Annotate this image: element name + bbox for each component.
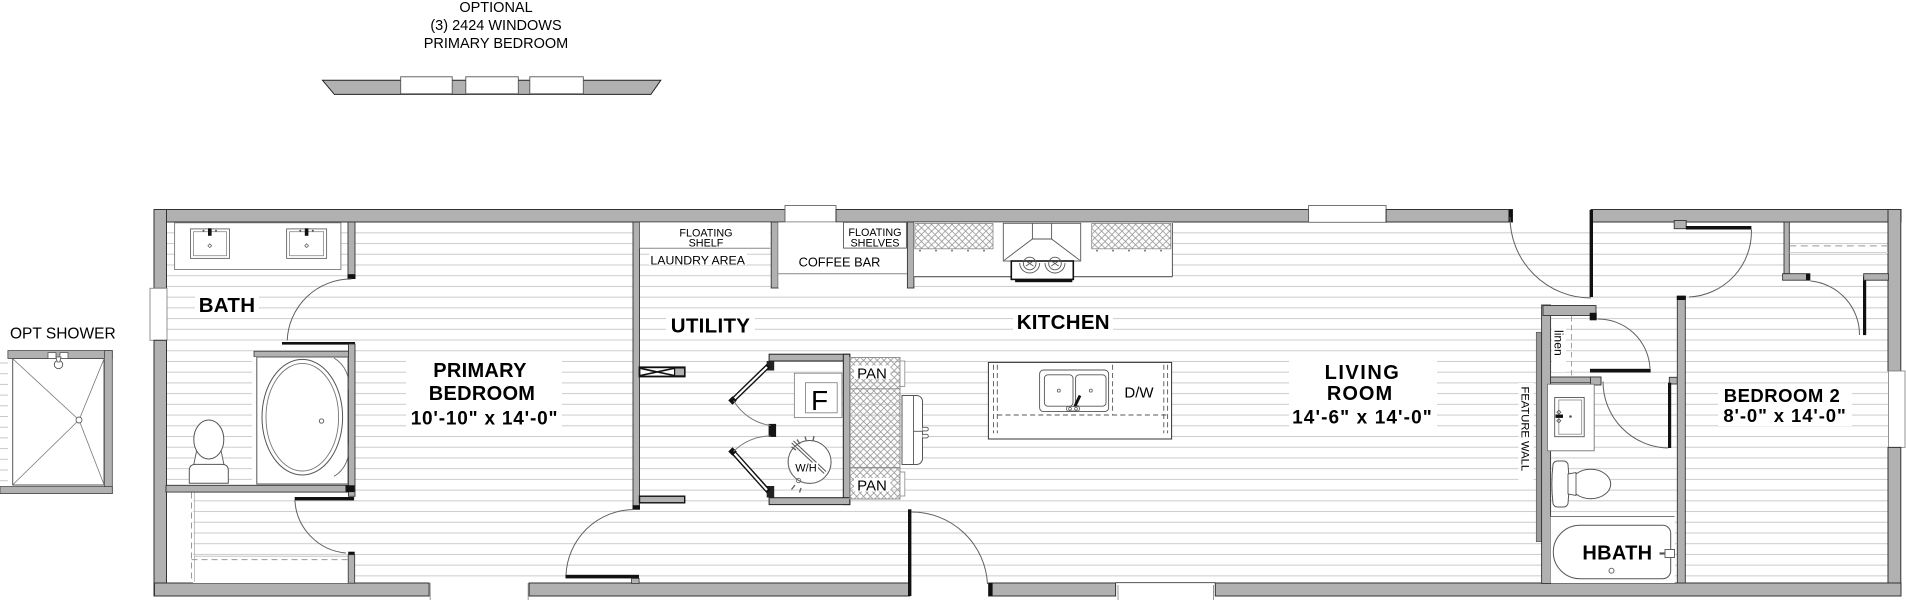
svg-text:LIVING: LIVING (1325, 362, 1401, 384)
svg-text:KITCHEN: KITCHEN (1017, 311, 1110, 334)
svg-text:COFFEE BAR: COFFEE BAR (799, 255, 881, 270)
svg-text:PAN: PAN (857, 478, 887, 495)
svg-text:LAUNDRY AREA: LAUNDRY AREA (650, 254, 745, 268)
svg-text:BATH: BATH (199, 294, 256, 317)
svg-text:PRIMARY BEDROOM: PRIMARY BEDROOM (424, 36, 569, 52)
svg-text:8'-0" x 14'-0": 8'-0" x 14'-0" (1723, 405, 1846, 426)
svg-text:D/W: D/W (1124, 385, 1154, 402)
svg-text:10'-10" x 14'-0": 10'-10" x 14'-0" (411, 409, 559, 430)
svg-text:ROOM: ROOM (1327, 383, 1393, 405)
svg-text:PRIMARY: PRIMARY (433, 360, 527, 382)
svg-text:PAN: PAN (857, 366, 887, 383)
svg-text:linen: linen (1552, 330, 1566, 356)
svg-text:OPTIONAL: OPTIONAL (459, 0, 532, 16)
svg-text:SHELVES: SHELVES (850, 238, 899, 250)
svg-text:FEATURE WALL: FEATURE WALL (1519, 387, 1531, 472)
svg-text:OPT SHOWER: OPT SHOWER (10, 326, 116, 343)
svg-text:W/H: W/H (795, 463, 816, 475)
svg-text:(3) 2424 WINDOWS: (3) 2424 WINDOWS (430, 18, 561, 34)
svg-text:BEDROOM: BEDROOM (429, 383, 536, 405)
svg-text:UTILITY: UTILITY (671, 315, 751, 338)
svg-text:F: F (811, 385, 828, 416)
svg-text:14'-6" x 14'-0": 14'-6" x 14'-0" (1292, 408, 1433, 429)
svg-text:BEDROOM 2: BEDROOM 2 (1724, 385, 1841, 406)
svg-text:HBATH: HBATH (1582, 543, 1652, 565)
svg-text:SHELF: SHELF (689, 238, 724, 250)
